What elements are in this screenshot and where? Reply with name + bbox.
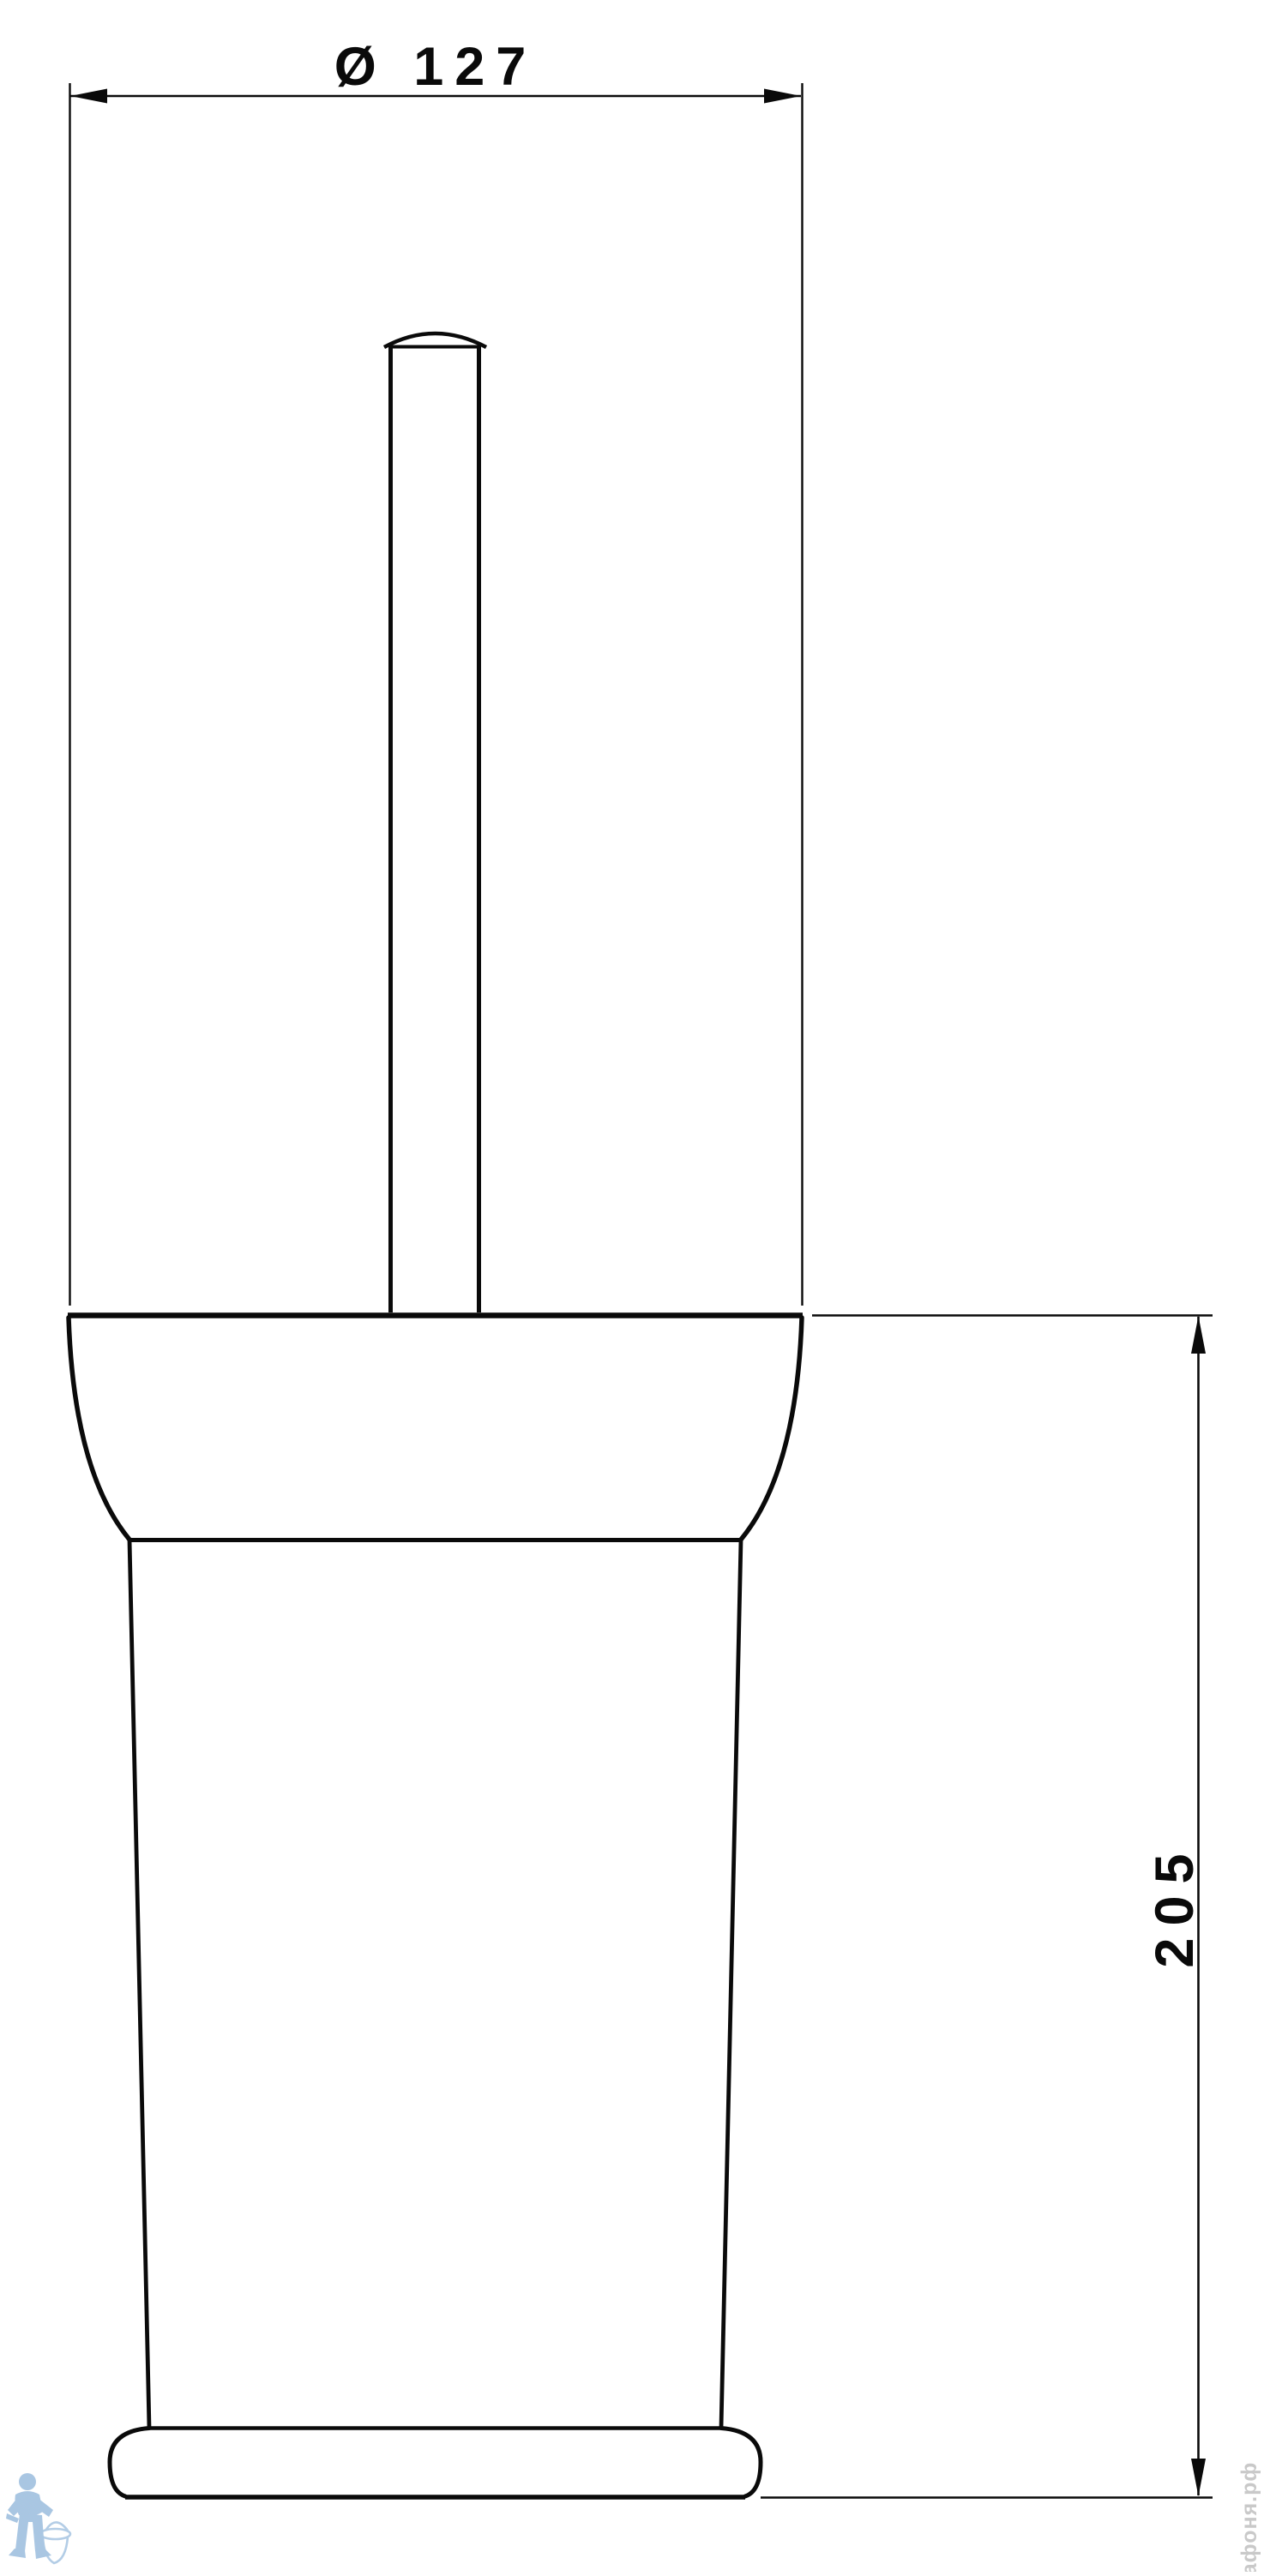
drawing-stage: Ø 127 bbox=[0, 0, 1264, 2572]
arrowhead-right bbox=[764, 89, 801, 104]
technical-drawing: Ø 127 bbox=[0, 0, 1264, 2572]
arrowhead-up bbox=[1191, 1316, 1206, 1354]
watermark-brand-text: афоня.рф bbox=[1237, 2462, 1261, 2572]
diameter-dimension: Ø 127 bbox=[70, 37, 803, 1306]
cup-right-edge bbox=[721, 1540, 741, 2429]
watermark-logo bbox=[6, 2473, 70, 2563]
toilet-icon bbox=[40, 2522, 70, 2563]
plumber-wrench bbox=[6, 2513, 19, 2523]
plumber-legs bbox=[15, 2513, 45, 2551]
cup-left-edge bbox=[129, 1540, 149, 2429]
arrowhead-down bbox=[1191, 2459, 1206, 2496]
rim-flare-right bbox=[741, 1318, 802, 1540]
base-left-corner bbox=[110, 2429, 149, 2497]
base-right-corner bbox=[721, 2429, 761, 2497]
height-dimension: 205 bbox=[761, 1316, 1213, 2498]
diameter-dimension-label: Ø 127 bbox=[334, 37, 538, 97]
rim-flare-left bbox=[69, 1318, 129, 1540]
arrowhead-left bbox=[70, 89, 107, 104]
height-dimension-label: 205 bbox=[1145, 1841, 1205, 1967]
plumber-head bbox=[19, 2473, 36, 2490]
brush-handle bbox=[384, 333, 486, 1312]
holder-outline bbox=[68, 1316, 803, 2498]
toilet-bowl bbox=[43, 2537, 68, 2563]
toilet-rim bbox=[40, 2529, 70, 2539]
